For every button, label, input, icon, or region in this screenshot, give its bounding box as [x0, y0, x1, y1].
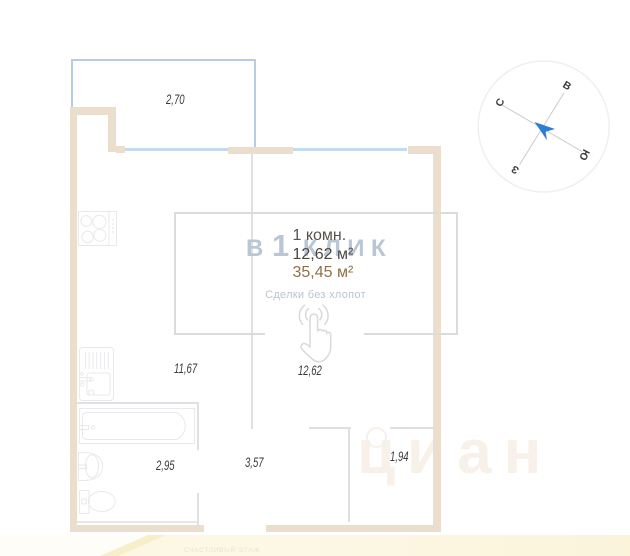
svg-text:В: В: [560, 79, 573, 93]
